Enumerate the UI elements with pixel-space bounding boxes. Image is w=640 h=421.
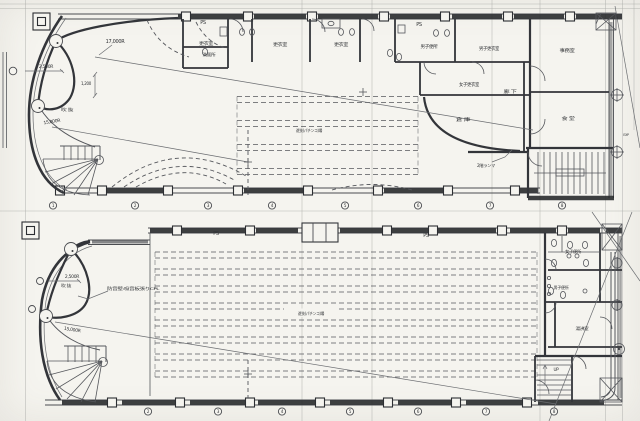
room-label-womens-locker: 女子更衣室 [459,81,480,88]
ps-label: PS [213,231,219,237]
room-label-corridor: 廊 下 [504,88,518,95]
room-label-locker-b: 更衣室 [273,41,288,48]
dim-1200: 1,200 [81,81,92,86]
lower-curved-west-wall [29,241,101,400]
upper-perimeter-walls [56,14,622,198]
stair-up-label: UP [554,367,560,372]
room-label-locker-c: 更衣室 [334,41,349,48]
ps-label: PS [200,20,206,26]
storage-curved-wall [424,97,520,151]
note-ranma: 2階ランマ [477,162,495,168]
note-soundproof-wall: 防音壁:吸音板張りCPL [107,286,161,291]
upper-right-staircase [534,152,606,194]
lower-floor-plan: PS PS 遊技(パチンコ)場 女子便所 男子便所 湯沸室 UP 吹 抜 2,5… [22,212,640,421]
dim-17000r: 17,000R [106,39,126,45]
note-exp: EXP [623,133,629,137]
room-label-mens-toilet: 男子便所 [554,284,569,291]
grid-bubble-left [29,306,36,313]
grid-bubble-left [37,278,44,285]
floor-plan-drawing: PS PS 更衣室 洗面所 更衣室 更衣室 男子便所 男子更衣室 女子更衣室 廊… [0,0,640,421]
upper-labels: PS PS 更衣室 洗面所 更衣室 更衣室 男子便所 男子更衣室 女子更衣室 廊… [39,20,629,168]
lower-entrance-vestibule [302,223,338,242]
upper-floor-plan: PS PS 更衣室 洗面所 更衣室 更衣室 男子便所 男子更衣室 女子更衣室 廊… [9,12,629,209]
room-label-void: 吹 抜 [61,106,75,113]
grid-bubble-left [9,67,17,75]
room-label-womens-toilet: 女子便所 [565,248,581,255]
dim-15000r: 15,000R [63,326,81,335]
room-label-locker-a: 更衣室 [199,40,214,47]
lower-grid-bubbles: 2 3 4 5 6 7 8 [144,408,557,415]
room-label-mens-locker: 男子更衣室 [479,45,500,52]
room-label-void: 吹 抜 [61,282,71,288]
room-label-dining: 食 堂 [562,115,576,122]
room-label-washroom: 洗面所 [203,51,216,58]
upper-fixtures [202,19,545,166]
ps-label: PS [416,22,422,28]
dim-2500r: 2,500R [65,274,79,280]
room-label-storage: 倉 庫 [456,116,471,123]
room-label-mens-toilet: 男子便所 [421,43,439,50]
dim-15000r: 15,000R [43,118,61,127]
room-label-hall: 遊技(パチンコ)場 [298,310,325,317]
wall-node-circle [50,35,63,48]
lower-right-staircase [535,356,572,402]
ps-label: PS [423,233,429,239]
upper-grid-bubbles: 1 2 3 4 5 6 7 8 [49,202,565,209]
floor-plan-sheet: PS PS 更衣室 洗面所 更衣室 更衣室 男子便所 男子更衣室 女子更衣室 廊… [0,0,640,421]
wall-node-circle [32,100,45,113]
upper-curved-west-wall [29,16,178,193]
machine-island-rows [155,252,537,398]
room-label-kitchenette: 湯沸室 [576,325,589,332]
wall-node-circle [40,310,53,323]
wall-node-circle [65,243,78,256]
dim-2500r: 2,500R [39,64,53,70]
room-label-office: 事務室 [560,47,576,54]
room-label-hall: 遊技(パチンコ)場 [296,127,323,134]
upper-partitions [183,19,613,198]
